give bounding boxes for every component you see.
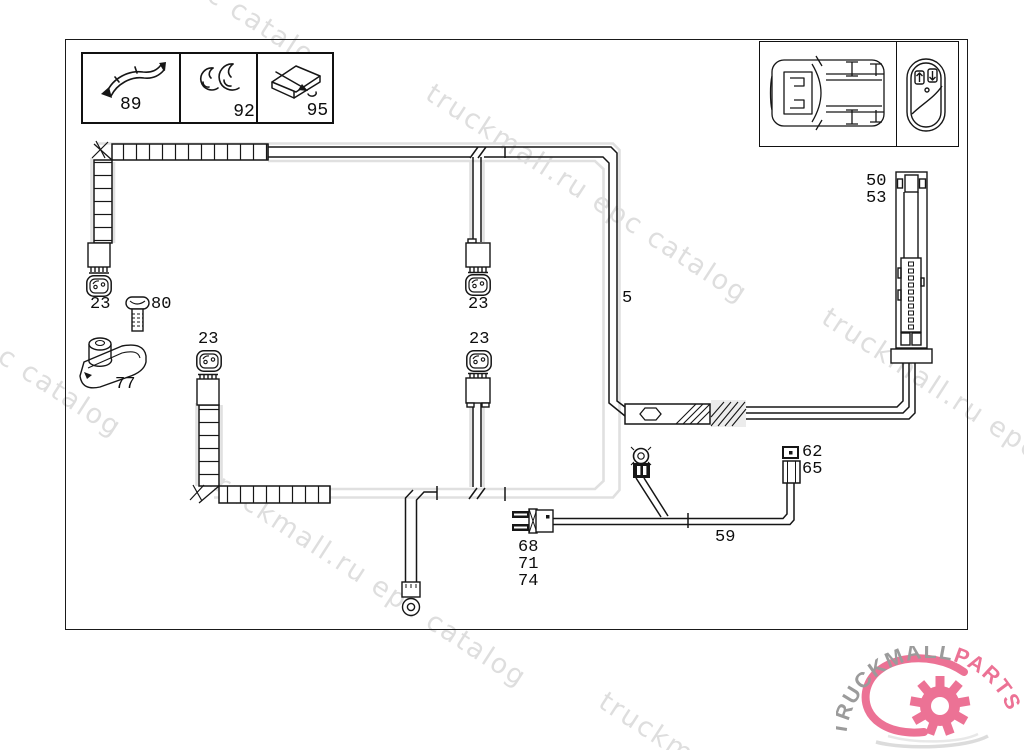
connector-23-branch (197, 351, 221, 405)
bracket-icon (80, 338, 146, 388)
ground-eyelet-icon (631, 447, 651, 478)
control-unit-5053-icon (891, 172, 932, 363)
harness-diagram-svg (0, 0, 1024, 750)
callout-23-branch[interactable]: 23 (198, 331, 218, 348)
brand-logo: TRUCKMALLPARTS (836, 646, 1024, 750)
callout-77[interactable]: 77 (115, 376, 135, 393)
callout-50[interactable]: 50 (866, 173, 886, 190)
callout-80[interactable]: 80 (151, 296, 171, 313)
callout-65[interactable]: 65 (802, 461, 822, 478)
callout-23-mid-lower[interactable]: 23 (469, 331, 489, 348)
connector-23-left (87, 243, 111, 296)
ring-terminal-icon (402, 582, 420, 616)
callout-71[interactable]: 71 (518, 556, 538, 573)
terminal-62-65-icon (783, 447, 800, 483)
callout-59[interactable]: 59 (715, 529, 735, 546)
harness-wires (268, 147, 915, 582)
connector-23-mid-lower (466, 351, 491, 407)
junction-block-icon (625, 402, 746, 426)
logo-gear-icon (910, 676, 971, 736)
connector-23-mid-upper (466, 239, 490, 295)
callout-74[interactable]: 74 (518, 573, 538, 590)
callout-62[interactable]: 62 (802, 444, 822, 461)
corrugated-tubes (92, 141, 330, 503)
callout-23-mid-upper[interactable]: 23 (468, 296, 488, 313)
callout-23-left[interactable]: 23 (90, 296, 110, 313)
callout-53[interactable]: 53 (866, 190, 886, 207)
callout-5[interactable]: 5 (622, 290, 632, 307)
callout-68[interactable]: 68 (518, 539, 538, 556)
catalog-diagram-page: truckmall.ru epc catalog truckmall.ru ep… (0, 0, 1024, 750)
screw-icon (126, 297, 149, 331)
plug-687174-icon (512, 509, 553, 533)
harness-halo (92, 144, 620, 498)
